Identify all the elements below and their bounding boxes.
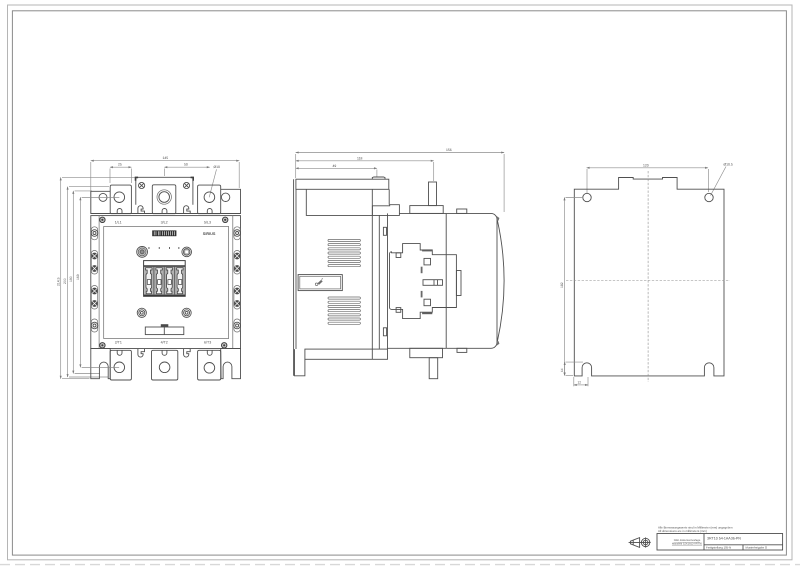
svg-text:Musterfreigabe G: Musterfreigabe G (746, 546, 768, 550)
svg-text:190: 190 (69, 276, 73, 282)
svg-text:1/L1: 1/L1 (115, 220, 122, 224)
svg-text:3RT10 54-1AA36-PN: 3RT10 54-1AA36-PN (707, 537, 741, 541)
svg-text:6/T3: 6/T3 (204, 341, 211, 345)
svg-text:14: 14 (560, 368, 564, 372)
svg-text:156: 156 (446, 148, 452, 152)
svg-text:All dimensions are in millimet: All dimensions are in millimeters (mm) (658, 529, 707, 533)
svg-text:200: 200 (63, 278, 67, 284)
svg-text:SIRIUS: SIRIUS (203, 232, 216, 236)
svg-text:Fertigstellung 105-N: Fertigstellung 105-N (706, 546, 731, 550)
svg-text:118: 118 (357, 156, 363, 160)
svg-text:12: 12 (578, 380, 582, 384)
svg-text:214.5: 214.5 (56, 277, 60, 286)
svg-text:50: 50 (184, 163, 188, 167)
svg-text:Ø10: Ø10 (214, 165, 221, 169)
svg-text:Ø10.5: Ø10.5 (724, 162, 733, 166)
svg-text:120: 120 (643, 163, 649, 167)
svg-text:2/T1: 2/T1 (115, 341, 122, 345)
svg-text:25: 25 (118, 163, 122, 167)
svg-text:49: 49 (333, 164, 337, 168)
svg-text:3/L2: 3/L2 (161, 220, 168, 224)
svg-text:182: 182 (560, 282, 564, 288)
svg-text:5/L3: 5/L3 (204, 220, 211, 224)
svg-text:169: 169 (76, 274, 80, 280)
svg-text:Massbild 3ZX1812-0RT50: Massbild 3ZX1812-0RT50 (672, 542, 703, 545)
svg-text:145: 145 (163, 156, 169, 160)
svg-text:4/T2: 4/T2 (161, 341, 168, 345)
